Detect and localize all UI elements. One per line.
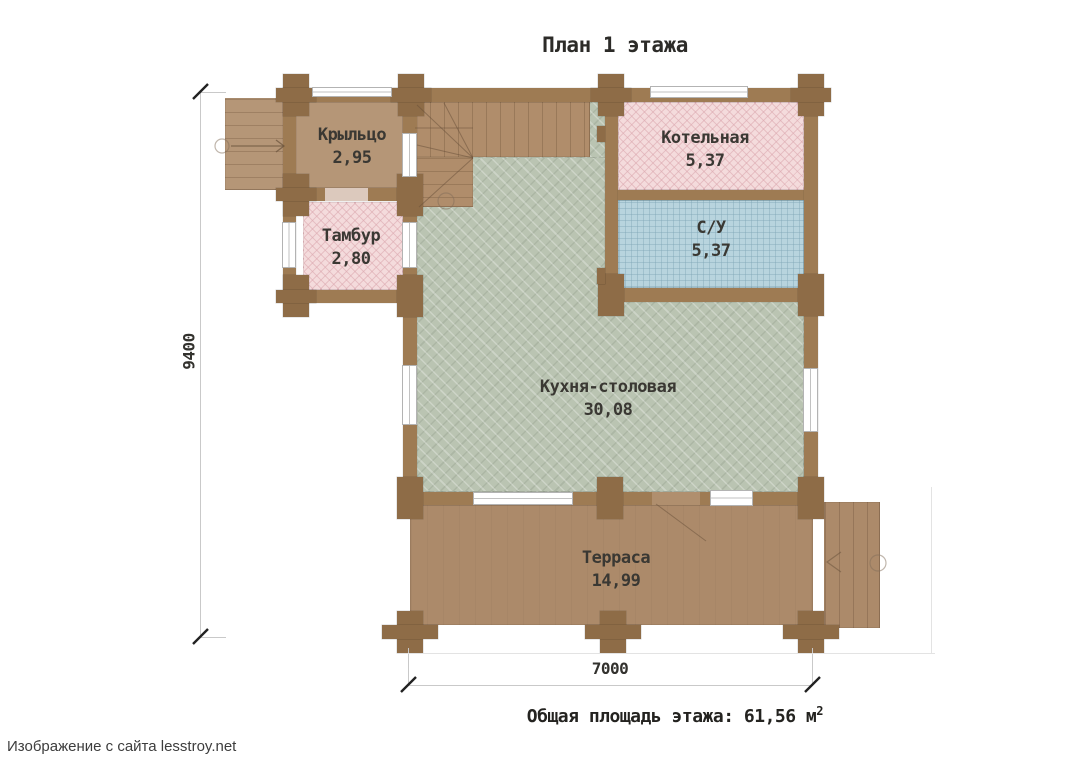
room-area: 30,08 bbox=[508, 399, 708, 422]
dimension-extension bbox=[200, 637, 226, 638]
total-area-label: Общая площадь этажа: bbox=[527, 706, 734, 727]
window bbox=[473, 492, 573, 505]
room-name: Кухня-столовая bbox=[508, 376, 708, 399]
construction-line bbox=[397, 653, 935, 654]
room-area: 2,95 bbox=[292, 147, 412, 170]
total-area-value: 61,56 bbox=[744, 706, 796, 727]
room-name: Тамбур bbox=[291, 225, 411, 248]
terrace-steps bbox=[824, 502, 880, 628]
room-name: Крыльцо bbox=[292, 124, 412, 147]
window bbox=[650, 86, 748, 98]
wall-boiler-wc-divider bbox=[618, 190, 804, 200]
door-opening-kitchen-terrace bbox=[652, 492, 700, 505]
total-area-sup: 2 bbox=[816, 704, 823, 718]
room-label-terrace: Терраса 14,99 bbox=[536, 547, 696, 593]
room-label-porch: Крыльцо 2,95 bbox=[292, 124, 412, 170]
log-post bbox=[382, 625, 438, 639]
log-post bbox=[276, 290, 316, 303]
log-post bbox=[391, 88, 431, 102]
total-area-unit: м bbox=[806, 706, 816, 727]
room-label-tambour: Тамбур 2,80 bbox=[291, 225, 411, 271]
room-label-kitchen: Кухня-столовая 30,08 bbox=[508, 376, 708, 422]
room-area: 14,99 bbox=[536, 570, 696, 593]
wall-wc-bottom bbox=[605, 288, 818, 302]
construction-line bbox=[931, 487, 932, 653]
log-post bbox=[597, 268, 605, 284]
window bbox=[710, 490, 753, 506]
dimension-line-vertical bbox=[200, 92, 201, 637]
page-title: План 1 этажа bbox=[478, 33, 752, 57]
dimension-extension bbox=[200, 92, 226, 93]
room-name: Котельная bbox=[625, 127, 785, 150]
wall-stair-boiler-divider bbox=[605, 102, 618, 302]
room-label-wc: С/У 5,37 bbox=[651, 217, 771, 263]
window bbox=[803, 368, 818, 432]
dimension-value-vertical: 9400 bbox=[180, 322, 199, 382]
window bbox=[312, 87, 392, 97]
log-post bbox=[397, 174, 423, 216]
log-post bbox=[397, 275, 423, 317]
log-post bbox=[798, 477, 824, 519]
door-opening-porch-tambour bbox=[325, 188, 368, 201]
dimension-line-horizontal bbox=[408, 685, 812, 686]
floor-plan: План 1 этажа Общая площадь этажа: 61,56 … bbox=[0, 0, 1080, 763]
room-area: 5,37 bbox=[651, 240, 771, 263]
room-area: 5,37 bbox=[625, 150, 785, 173]
room-label-boiler: Котельная 5,37 bbox=[625, 127, 785, 173]
log-post bbox=[591, 88, 631, 102]
log-post bbox=[276, 88, 316, 102]
log-post bbox=[397, 477, 423, 519]
log-post bbox=[585, 625, 641, 639]
room-area: 2,80 bbox=[291, 248, 411, 271]
log-post bbox=[783, 625, 839, 639]
window bbox=[402, 365, 417, 425]
room-name: Терраса bbox=[536, 547, 696, 570]
log-post bbox=[791, 88, 831, 102]
total-area-text: Общая площадь этажа: 61,56 м2 bbox=[520, 704, 823, 727]
log-post bbox=[798, 274, 824, 316]
staircase-upper-flight bbox=[415, 102, 590, 157]
staircase-lower-flight bbox=[415, 157, 473, 207]
log-post bbox=[276, 188, 316, 201]
log-post bbox=[597, 477, 623, 519]
room-name: С/У bbox=[651, 217, 771, 240]
dimension-value-horizontal: 7000 bbox=[560, 659, 660, 678]
attribution-watermark: Изображение с сайта lesstroy.net bbox=[7, 738, 236, 755]
log-post bbox=[597, 126, 605, 142]
